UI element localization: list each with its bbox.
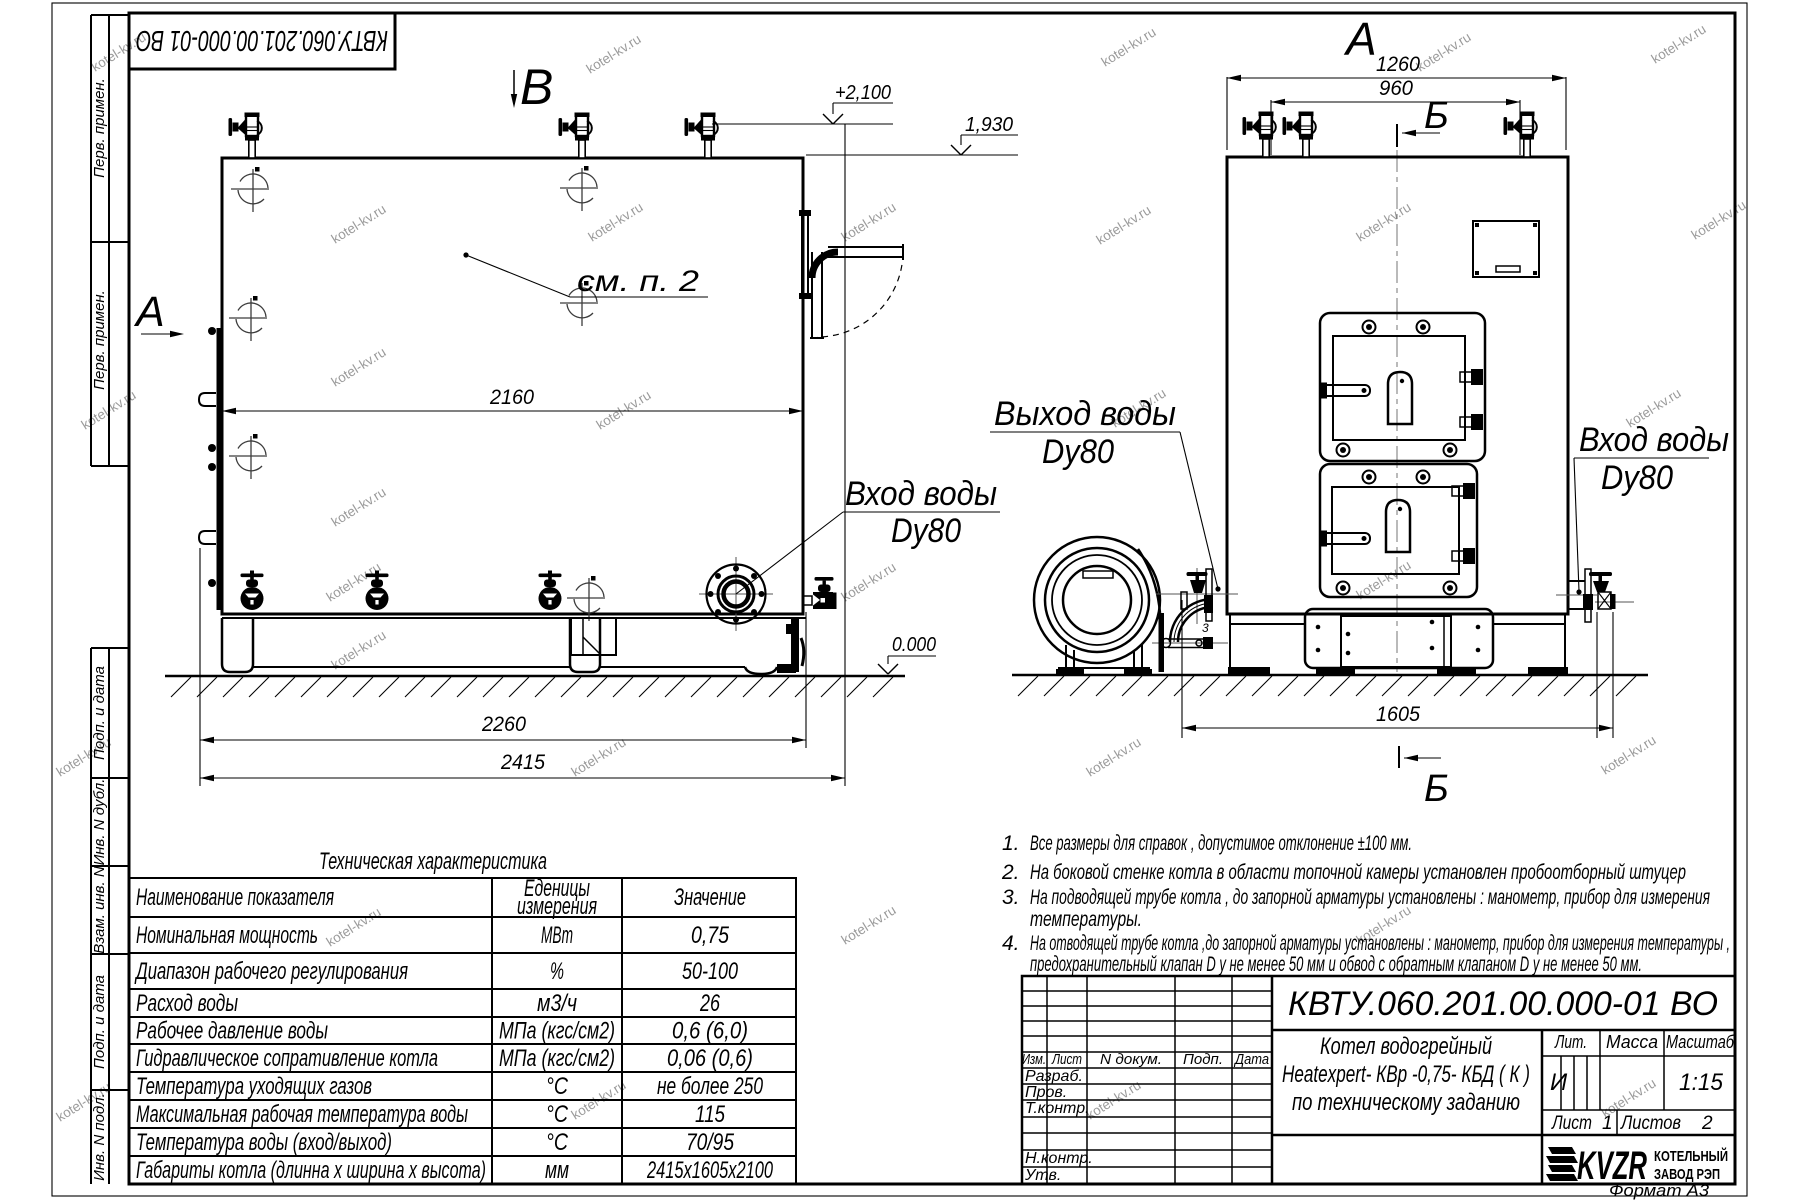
svg-text:%: % — [550, 958, 564, 985]
svg-text:Лист: Лист — [1550, 1113, 1592, 1134]
svg-text:Габариты котла (длинна х ширин: Габариты котла (длинна х ширина х высота… — [136, 1157, 486, 1184]
svg-text:Разраб.: Разраб. — [1025, 1068, 1083, 1085]
svg-text:°С: °С — [546, 1073, 569, 1100]
svg-text:Подп. и дата: Подп. и дата — [91, 666, 108, 760]
svg-text:Подп.: Подп. — [1183, 1051, 1223, 1068]
svg-text:Heatexpert- КВр -0,75- КБД ( К: Heatexpert- КВр -0,75- КБД ( К ) — [1282, 1061, 1530, 1088]
svg-text:Значение: Значение — [674, 884, 746, 911]
svg-text:МПа (кгс/см2): МПа (кгс/см2) — [499, 1045, 615, 1072]
svg-text:kotel-kv.ru: kotel-kv.ru — [1414, 29, 1474, 74]
svg-text:И: И — [1550, 1069, 1568, 1096]
svg-text:kotel-kv.ru: kotel-kv.ru — [1094, 202, 1154, 247]
svg-text:0,75: 0,75 — [691, 922, 730, 949]
svg-text:Масса: Масса — [1606, 1032, 1658, 1052]
svg-text:На отводящей трубе котла ,до з: На отводящей трубе котла ,до запорной ар… — [1030, 932, 1730, 955]
svg-text:0,06 (0,6): 0,06 (0,6) — [667, 1045, 753, 1072]
svg-text:Dy80: Dy80 — [1042, 433, 1114, 471]
svg-text:В: В — [520, 59, 553, 115]
svg-text:1,930: 1,930 — [965, 114, 1013, 136]
svg-text:см. п. 2: см. п. 2 — [577, 265, 699, 298]
svg-text:Изм.: Изм. — [1022, 1051, 1046, 1068]
svg-text:Лит.: Лит. — [1554, 1032, 1587, 1052]
svg-text:70/95: 70/95 — [686, 1129, 735, 1156]
svg-text:измерения: измерения — [517, 893, 597, 920]
svg-text:2415: 2415 — [500, 751, 545, 774]
svg-text:kotel-kv.ru: kotel-kv.ru — [594, 387, 654, 432]
svg-text:kotel-kv.ru: kotel-kv.ru — [584, 31, 644, 76]
svg-text:kotel-kv.ru: kotel-kv.ru — [1354, 199, 1414, 244]
svg-text:kotel-kv.ru: kotel-kv.ru — [329, 627, 389, 672]
svg-text:Котел водогрейный: Котел водогрейный — [1320, 1033, 1492, 1060]
svg-text:2260: 2260 — [481, 713, 526, 736]
svg-text:по техническому заданию: по техническому заданию — [1292, 1089, 1520, 1116]
svg-text:Максимальная рабочая температу: Максимальная рабочая температура воды — [136, 1101, 468, 1128]
svg-text:+2,100: +2,100 — [835, 82, 891, 104]
svg-text:Наименование показателя: Наименование показателя — [136, 884, 334, 911]
svg-text:Dy80: Dy80 — [1601, 459, 1673, 497]
svg-text:26: 26 — [699, 990, 720, 1017]
svg-text:1605: 1605 — [1376, 703, 1420, 726]
svg-text:температуры.: температуры. — [1030, 908, 1142, 931]
svg-text:Взам. инв. N: Взам. инв. N — [91, 866, 108, 954]
svg-text:КВТУ.060.201.00.000-01 ВО: КВТУ.060.201.00.000-01 ВО — [136, 24, 388, 56]
svg-text:Перв. примен.: Перв. примен. — [91, 290, 108, 390]
svg-text:Лист: Лист — [1051, 1051, 1082, 1068]
svg-text:Т.контр.: Т.контр. — [1025, 1100, 1090, 1117]
svg-text:Выход воды: Выход воды — [994, 395, 1176, 433]
svg-text:Масштаб: Масштаб — [1666, 1032, 1735, 1052]
svg-text:На подводящей трубе котла ,: На подводящей трубе котла , до запорной … — [1030, 886, 1710, 909]
svg-text:МПа (кгс/см2): МПа (кгс/см2) — [499, 1018, 615, 1045]
svg-text:Подп. и дата: Подп. и дата — [91, 975, 108, 1069]
svg-text:КОТЕЛЬНЫЙ: КОТЕЛЬНЫЙ — [1654, 1147, 1728, 1165]
svg-text:Вход воды: Вход воды — [845, 475, 997, 513]
svg-text:Н.контр.: Н.контр. — [1025, 1150, 1093, 1167]
svg-text:kotel-kv.ru: kotel-kv.ru — [839, 199, 899, 244]
svg-text:kotel-kv.ru: kotel-kv.ru — [1689, 197, 1749, 242]
svg-text:kotel-kv.ru: kotel-kv.ru — [569, 734, 629, 779]
svg-text:Температура воды (вход/выход): Температура воды (вход/выход) — [136, 1129, 392, 1156]
svg-text:kotel-kv.ru: kotel-kv.ru — [1084, 734, 1144, 779]
svg-text:kotel-kv.ru: kotel-kv.ru — [329, 201, 389, 246]
svg-text:КВТУ.060.201.00.000-01 ВО: КВТУ.060.201.00.000-01 ВО — [1288, 985, 1718, 1023]
svg-text:kotel-kv.ru: kotel-kv.ru — [839, 902, 899, 947]
svg-text:Гидравлическое сопративление к: Гидравлическое сопративление котла — [136, 1045, 438, 1072]
svg-text:kotel-kv.ru: kotel-kv.ru — [1649, 21, 1709, 66]
svg-text:2160: 2160 — [489, 386, 534, 409]
svg-text:3.: 3. — [1002, 886, 1020, 909]
svg-text:Температура уходящих газов: Температура уходящих газов — [136, 1073, 372, 1100]
svg-text:Пров.: Пров. — [1025, 1084, 1067, 1101]
svg-text:Расход воды: Расход воды — [136, 990, 238, 1017]
svg-text:2: 2 — [1701, 1113, 1713, 1134]
svg-text:kotel-kv.ru: kotel-kv.ru — [1599, 732, 1659, 777]
svg-text:Формат А3: Формат А3 — [1609, 1181, 1710, 1200]
svg-text:1: 1 — [1602, 1113, 1613, 1134]
svg-text:Рабочее давление воды: Рабочее давление воды — [136, 1018, 328, 1045]
svg-text:Техническая характеристика: Техническая характеристика — [319, 848, 547, 875]
svg-text:Dy80: Dy80 — [891, 512, 961, 550]
svg-text:kotel-kv.ru: kotel-kv.ru — [1099, 24, 1159, 69]
svg-text:Инв. N подл.: Инв. N подл. — [91, 1093, 108, 1181]
svg-text:°С: °С — [546, 1101, 569, 1128]
svg-text:kotel-kv.ru: kotel-kv.ru — [329, 344, 389, 389]
svg-text:N докум.: N докум. — [1100, 1051, 1162, 1068]
svg-text:3: 3 — [1202, 621, 1209, 635]
svg-text:Номинальная мощность: Номинальная мощность — [136, 922, 318, 949]
svg-text:МВт: МВт — [541, 922, 573, 949]
svg-text:Все размеры для справок , допу: Все размеры для справок , допустимое отк… — [1030, 832, 1412, 855]
svg-text:2415х1605х2100: 2415х1605х2100 — [646, 1157, 773, 1184]
svg-text:Вход воды: Вход воды — [1579, 421, 1729, 459]
svg-text:Утв.: Утв. — [1024, 1167, 1061, 1184]
svg-text:kotel-kv.ru: kotel-kv.ru — [586, 199, 646, 244]
svg-text:115: 115 — [695, 1101, 726, 1128]
svg-text:960: 960 — [1379, 77, 1413, 100]
svg-text:Перв. примен.: Перв. примен. — [91, 78, 108, 178]
svg-text:предохранительный клапан D у: предохранительный клапан D у не менее 50… — [1030, 953, 1642, 976]
svg-text:А: А — [133, 288, 165, 336]
svg-text:2.: 2. — [1001, 861, 1020, 884]
svg-text:kotel-kv.ru: kotel-kv.ru — [839, 559, 899, 604]
svg-text:0.000: 0.000 — [892, 634, 936, 656]
svg-text:не более 250: не более 250 — [657, 1073, 763, 1100]
svg-text:kotel-kv.ru: kotel-kv.ru — [324, 904, 384, 949]
svg-text:1.: 1. — [1002, 832, 1020, 855]
svg-text:Листов: Листов — [1619, 1113, 1681, 1134]
svg-text:1260: 1260 — [1376, 53, 1420, 76]
svg-text:мм: мм — [545, 1157, 569, 1184]
svg-text:Диапазон рабочего регулировани: Диапазон рабочего регулирования — [134, 958, 408, 985]
svg-text:А: А — [1343, 13, 1377, 65]
svg-text:На боковой стенке котла в обла: На боковой стенке котла в области топочн… — [1030, 861, 1686, 884]
svg-text:Дата: Дата — [1233, 1051, 1269, 1068]
svg-text:1:15: 1:15 — [1679, 1069, 1724, 1096]
svg-text:Б: Б — [1424, 95, 1449, 137]
svg-text:Инв. N дубл.: Инв. N дубл. — [91, 779, 108, 866]
svg-text:kotel-kv.ru: kotel-kv.ru — [329, 484, 389, 529]
svg-text:м3/ч: м3/ч — [537, 990, 577, 1017]
svg-text:0,6 (6,0): 0,6 (6,0) — [672, 1018, 748, 1045]
svg-text:50-100: 50-100 — [682, 958, 738, 985]
svg-text:Б: Б — [1424, 768, 1449, 810]
svg-text:4.: 4. — [1002, 932, 1020, 955]
svg-text:°С: °С — [546, 1129, 569, 1156]
